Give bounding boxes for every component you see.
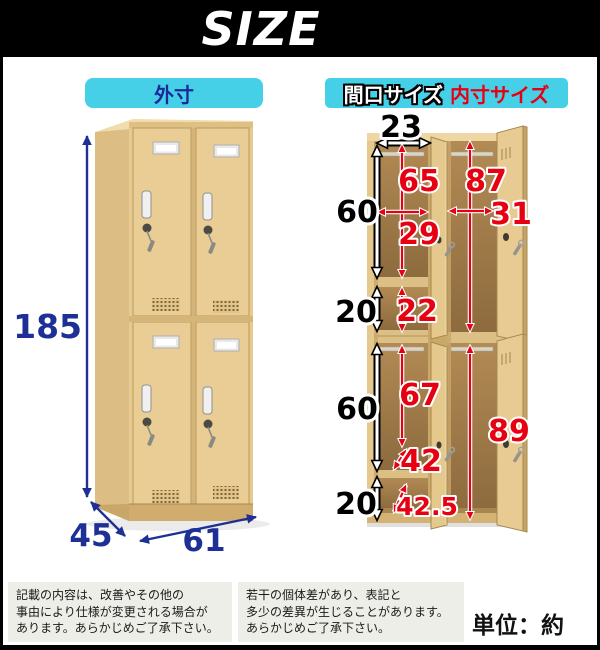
size-type-pill: 間口サイズ 内寸サイズ (325, 78, 568, 108)
dim-inner-right-upper-width: 31 (490, 197, 532, 232)
inner-dimension-arrows (378, 142, 492, 519)
note-line: あらかじめご了承下さい。 (246, 620, 456, 637)
dim-opening-lower-door: 60 (336, 392, 378, 427)
dim-inner-lower-depth: 42 (400, 444, 442, 479)
outer-size-label: 外寸 (154, 79, 194, 108)
outer-dimension-arrows (87, 136, 256, 541)
note-line: あります。あらかじめご了承下さい。 (16, 620, 224, 637)
note-line: 事由により仕様が変更される場合が (16, 604, 224, 621)
dim-opening-lower-small: 20 (335, 487, 377, 522)
dim-opening-upper-small: 20 (335, 295, 377, 330)
dim-inner-right-upper-height: 87 (465, 164, 507, 199)
dim-outer-depth: 45 (69, 518, 112, 554)
door-handles (142, 191, 212, 414)
dim-inner-bottom-depth: 42.5 (396, 492, 458, 521)
inner-size-label: 内寸サイズ (450, 79, 549, 108)
dim-inner-upper-height: 65 (398, 164, 440, 199)
left-open-doors (431, 137, 447, 529)
disclaimer-note-right: 若干の個体差があり、表記と 多少の差異が生じることがあります。 あらかじめご了承… (238, 582, 464, 642)
opening-size-label: 間口サイズ (344, 79, 443, 108)
inner-locker-illustration (367, 126, 527, 532)
dim-opening-top-width: 23 (380, 110, 422, 145)
dim-inner-upper-width: 29 (398, 217, 440, 252)
door-vent-slits (502, 147, 510, 365)
vent-grilles (152, 298, 239, 503)
dim-outer-height: 185 (13, 307, 82, 346)
right-open-doors (497, 126, 527, 532)
locks-and-keys (143, 224, 217, 449)
open-door-locks (437, 233, 525, 463)
title-banner: SIZE (0, 0, 600, 57)
page-title: SIZE (201, 6, 320, 52)
dim-outer-width: 61 (182, 523, 225, 559)
outer-size-pill: 外寸 (85, 78, 263, 108)
note-line: 記載の内容は、改善やその他の (16, 587, 224, 604)
name-card-holders (153, 142, 239, 351)
dim-inner-right-lower-height: 89 (488, 414, 530, 449)
note-line: 若干の個体差があり、表記と (246, 587, 456, 604)
disclaimer-note-left: 記載の内容は、改善やその他の 事由により仕様が変更される場合が あります。あらか… (8, 582, 232, 642)
dim-inner-lower-height: 67 (399, 378, 441, 413)
opening-dimension-arrows (377, 143, 429, 519)
size-infographic: SIZE 外寸 間口サイズ 内寸サイズ (0, 0, 600, 650)
unit-label: 単位：約cm (472, 606, 600, 650)
dim-opening-upper-door: 60 (336, 195, 378, 230)
note-line: 多少の差異が生じることがあります。 (246, 604, 456, 621)
dim-inner-upper-small-height: 22 (396, 294, 438, 329)
outer-locker-illustration (86, 119, 270, 531)
